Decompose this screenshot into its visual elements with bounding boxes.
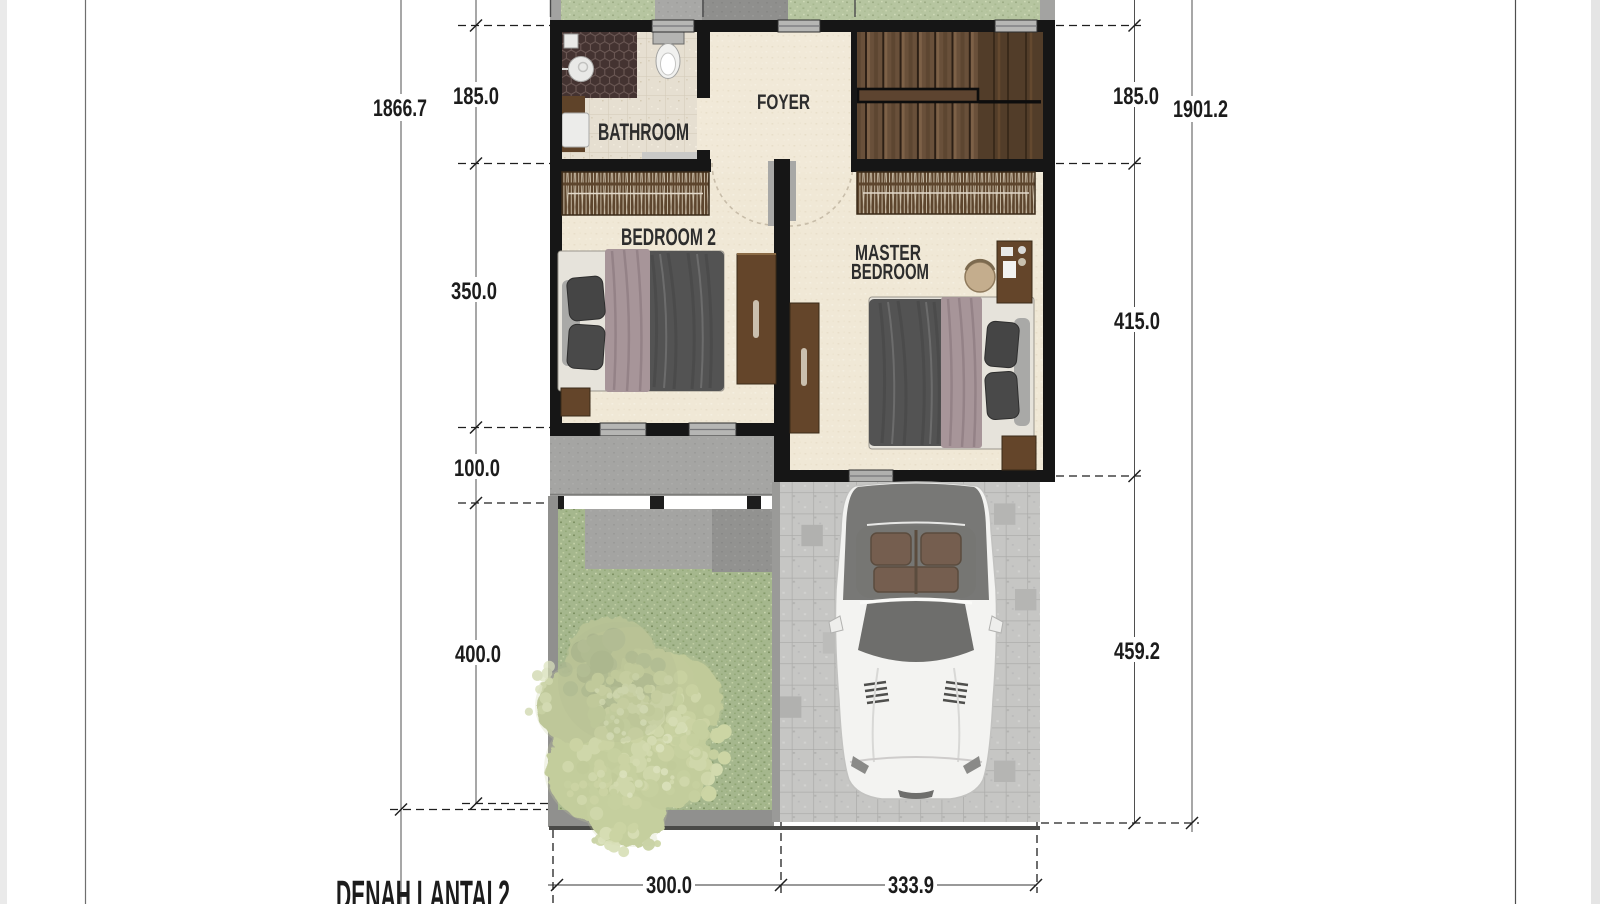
svg-text:BATHROOM: BATHROOM — [598, 119, 689, 146]
svg-text:DENAH LANTAI 2: DENAH LANTAI 2 — [336, 872, 510, 904]
svg-text:415.0: 415.0 — [1114, 308, 1160, 335]
svg-text:1901.2: 1901.2 — [1173, 96, 1228, 123]
svg-text:185.0: 185.0 — [1113, 83, 1159, 110]
svg-text:333.9: 333.9 — [888, 872, 934, 899]
svg-text:1866.7: 1866.7 — [373, 95, 427, 122]
svg-text:400.0: 400.0 — [455, 641, 501, 668]
svg-text:BEDROOM 2: BEDROOM 2 — [621, 224, 716, 251]
svg-text:100.0: 100.0 — [454, 455, 500, 482]
svg-text:BEDROOM: BEDROOM — [851, 259, 929, 284]
svg-text:350.0: 350.0 — [451, 278, 497, 305]
svg-text:185.0: 185.0 — [453, 83, 499, 110]
svg-text:300.0: 300.0 — [646, 872, 692, 899]
svg-text:FOYER: FOYER — [757, 91, 810, 114]
svg-text:459.2: 459.2 — [1114, 638, 1160, 665]
